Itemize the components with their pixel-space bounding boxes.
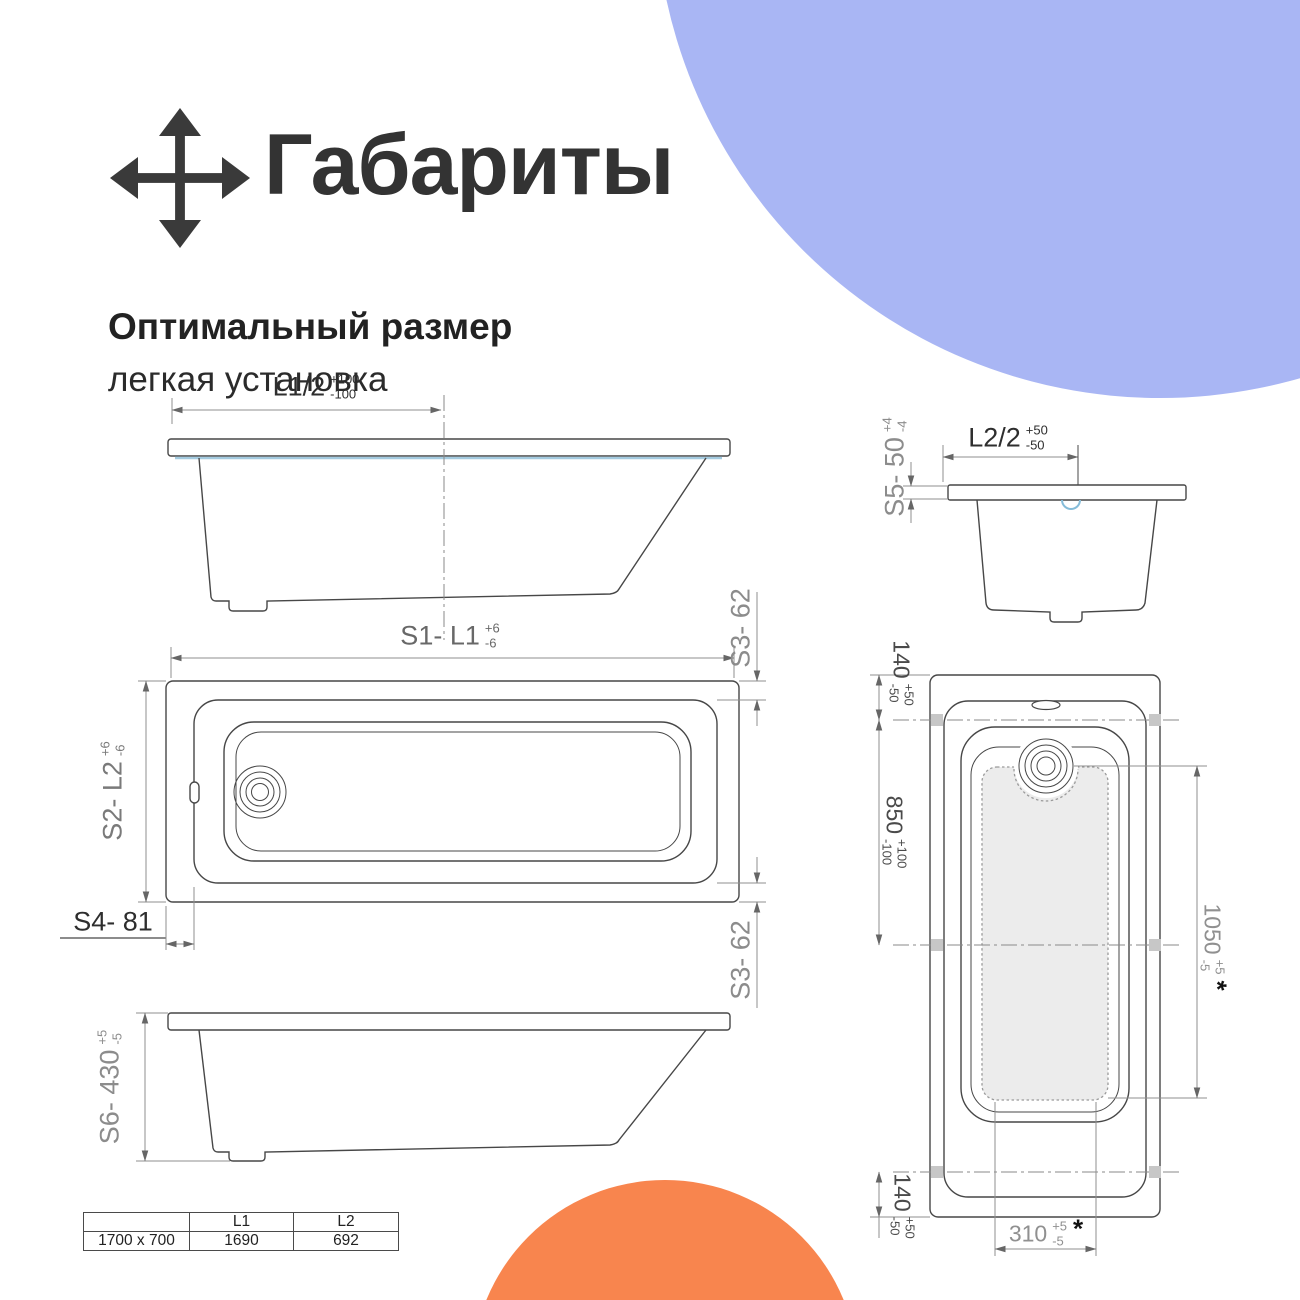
dim-value: 310 — [1009, 1223, 1047, 1246]
dim-tolerance: +5 -5 — [1052, 1219, 1067, 1248]
size-table: L1 L2 1700 x 700 1690 692 — [83, 1212, 399, 1251]
dim-label-140-top: 140 +50 -50 — [886, 640, 915, 705]
table-cell-l2: 692 — [294, 1232, 399, 1251]
table-row: 1700 x 700 1690 692 — [84, 1232, 399, 1251]
dim-value: S4- 81 — [73, 909, 153, 936]
dim-tolerance: +50 -50 — [886, 684, 915, 706]
dim-tolerance: +5 -5 — [95, 1030, 124, 1045]
dim-value: S3- 62 — [728, 920, 755, 1000]
dim-label-s3-bottom: S3- 62 — [728, 920, 755, 1000]
overflow-mark — [1032, 701, 1060, 710]
bathtub-body — [199, 458, 706, 611]
footnote-star: * — [1208, 980, 1226, 990]
side-view-bottom — [136, 1013, 730, 1161]
dim-label-1050: 1050 +5 -5 * — [1197, 903, 1226, 990]
table-header-cell: L1 — [190, 1213, 294, 1232]
rim-inner-edge — [194, 700, 717, 883]
basin-edge — [224, 722, 691, 861]
overflow-mark — [190, 782, 199, 803]
table-header-cell — [84, 1213, 190, 1232]
dim-tolerance: +5 -5 — [1197, 960, 1226, 975]
dim-value: 140 — [890, 640, 913, 678]
dim-label-s1: S1- L1 +6 -6 — [400, 621, 499, 650]
anti-slip-mat — [982, 767, 1108, 1100]
mount-square — [931, 939, 943, 951]
dim-label-s2: S2- L2 +6 -6 — [98, 741, 127, 840]
dim-value: 850 — [883, 796, 906, 834]
dim-value: S5- 50 — [882, 437, 909, 517]
dim-tolerance: +4 -4 — [880, 417, 909, 432]
dim-tolerance: +50 -50 — [887, 1217, 916, 1239]
end-view — [903, 445, 1186, 622]
bathtub-rim — [168, 1013, 730, 1030]
side-view-long — [168, 395, 730, 640]
bathtub-dimensions-infographic: Габариты Оптимальный размер легкая устан… — [0, 0, 1300, 1300]
dim-value: S3- 62 — [728, 588, 755, 668]
dim-label-s4: S4- 81 — [73, 909, 153, 936]
bathtub-body — [977, 500, 1157, 622]
mount-square — [1149, 939, 1161, 951]
dim-label-850: 850 +100 -100 — [879, 796, 908, 869]
bathtub-rim — [948, 485, 1186, 500]
dim-label-s5: S5- 50 +4 -4 — [880, 417, 909, 516]
installation-plan-view — [870, 675, 1207, 1256]
dim-label-140-bottom: 140 +50 -50 — [887, 1173, 916, 1238]
dim-value: 1050 — [1201, 903, 1224, 954]
table-cell-size: 1700 x 700 — [84, 1232, 190, 1251]
mount-square — [1149, 714, 1161, 726]
dim-label-s6: S6- 430 +5 -5 — [95, 1030, 124, 1144]
mount-square — [931, 714, 943, 726]
dim-tolerance: +100 -100 — [879, 839, 908, 868]
mount-square — [1149, 1166, 1161, 1178]
dim-value: L2/2 — [968, 425, 1021, 452]
dim-value: L1/2 — [273, 374, 326, 401]
dim-value: S6- 430 — [97, 1050, 124, 1145]
dim-value: S2- L2 — [100, 761, 127, 841]
overflow-hole — [1062, 500, 1080, 509]
basin-inner-edge — [236, 732, 680, 851]
table-header-cell: L2 — [294, 1213, 399, 1232]
dim-label-310: 310 +5 -5 * — [1009, 1219, 1083, 1248]
mount-square — [931, 1166, 943, 1178]
mat-drain-notch — [1014, 734, 1078, 798]
technical-drawing-lines — [0, 0, 1300, 1300]
dim-tolerance: +50 -50 — [1026, 423, 1048, 452]
table-cell-l1: 1690 — [190, 1232, 294, 1251]
bathtub-rim — [168, 439, 730, 456]
dim-tolerance: +6 -6 — [98, 741, 127, 756]
bathtub-body — [199, 1030, 706, 1161]
dim-label-l2-half: L2/2 +50 -50 — [968, 423, 1048, 452]
footnote-star: * — [1073, 1219, 1083, 1237]
dim-value: 140 — [891, 1173, 914, 1211]
dim-label-l1-half: L1/2 +100 -100 — [273, 372, 360, 401]
drain-icon — [234, 766, 286, 818]
top-view — [60, 592, 766, 1008]
dim-tolerance: +100 -100 — [330, 372, 359, 401]
dim-label-s3-top: S3- 62 — [728, 588, 755, 668]
dim-tolerance: +6 -6 — [485, 621, 500, 650]
dim-value: S1- L1 — [400, 623, 480, 650]
table-header-row: L1 L2 — [84, 1213, 399, 1232]
